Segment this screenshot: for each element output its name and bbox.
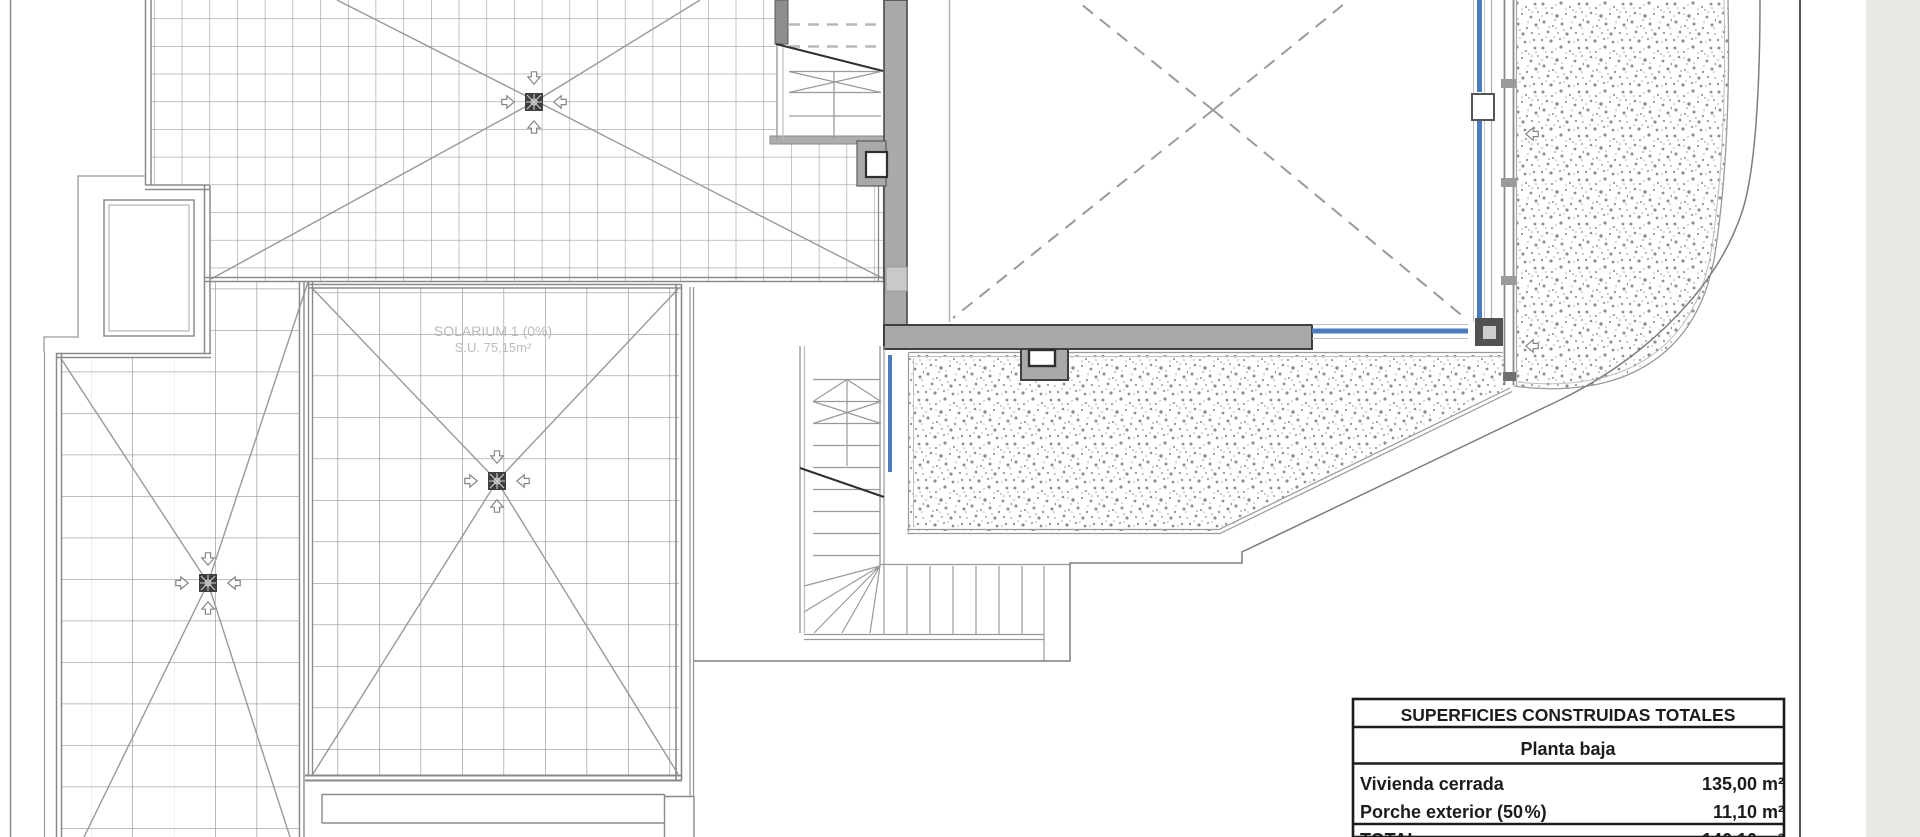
- svg-text:135,00 m²: 135,00 m²: [1702, 774, 1784, 794]
- svg-text:11,10 m²: 11,10 m²: [1713, 802, 1784, 822]
- svg-text:SOLARIUM 1 (0%): SOLARIUM 1 (0%): [434, 323, 552, 339]
- svg-text:Planta baja: Planta baja: [1520, 739, 1616, 759]
- svg-text:TOTAL: TOTAL: [1360, 830, 1418, 837]
- svg-text:146,10 m²: 146,10 m²: [1702, 830, 1784, 837]
- svg-text:Vivienda cerrada: Vivienda cerrada: [1360, 774, 1505, 794]
- svg-text:SUPERFICIES CONSTRUIDAS TOTALE: SUPERFICIES CONSTRUIDAS TOTALES: [1401, 705, 1736, 725]
- svg-text:Porche exterior (50 %): Porche exterior (50 %): [1360, 802, 1547, 822]
- svg-text:S.U. 75,15m²: S.U. 75,15m²: [455, 340, 532, 355]
